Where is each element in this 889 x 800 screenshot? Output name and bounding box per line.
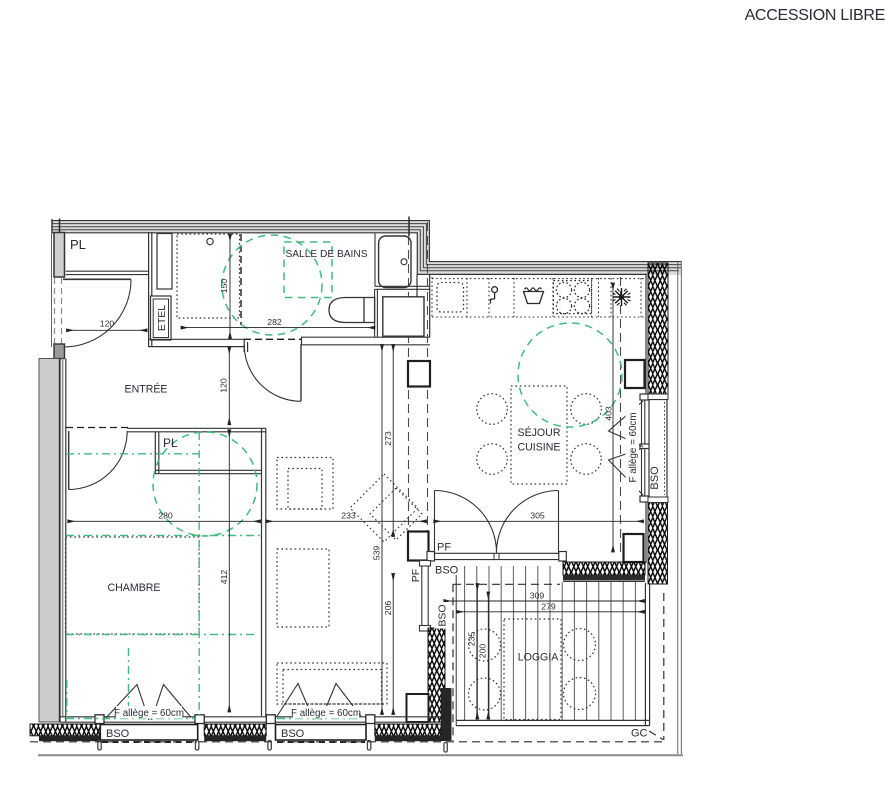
svg-text:PL: PL	[70, 237, 86, 252]
svg-text:235: 235	[467, 632, 477, 647]
svg-text:ACCESSION LIBRE: ACCESSION LIBRE	[745, 7, 885, 24]
svg-text:BSO: BSO	[106, 728, 130, 740]
svg-text:539: 539	[371, 546, 381, 561]
svg-text:GC: GC	[631, 728, 648, 740]
svg-text:CUISINE: CUISINE	[518, 442, 561, 454]
svg-text:PL: PL	[163, 436, 178, 450]
svg-text:PF: PF	[437, 542, 451, 554]
svg-text:120: 120	[219, 378, 229, 393]
svg-text:BSO: BSO	[437, 604, 449, 626]
svg-text:F allège = 60cm: F allège = 60cm	[114, 708, 184, 719]
svg-text:ETEL: ETEL	[156, 305, 168, 331]
svg-text:273: 273	[383, 431, 393, 446]
svg-text:150: 150	[219, 279, 229, 294]
svg-text:BSO: BSO	[649, 466, 661, 490]
svg-text:LOGGIA: LOGGIA	[518, 652, 560, 664]
svg-text:206: 206	[383, 601, 393, 616]
svg-text:412: 412	[219, 570, 229, 585]
svg-text:309: 309	[530, 591, 545, 601]
svg-text:SÉJOUR: SÉJOUR	[518, 426, 561, 439]
svg-text:ENTRÉE: ENTRÉE	[125, 383, 168, 396]
svg-text:CHAMBRE: CHAMBRE	[108, 582, 161, 594]
svg-text:305: 305	[530, 511, 545, 521]
svg-text:BSO: BSO	[435, 565, 459, 577]
svg-text:280: 280	[158, 511, 173, 521]
svg-text:F allège = 60cm: F allège = 60cm	[291, 708, 361, 719]
svg-text:SALLE DE BAINS: SALLE DE BAINS	[285, 249, 367, 260]
svg-text:233: 233	[341, 511, 356, 521]
svg-text:403: 403	[603, 406, 613, 421]
svg-text:PF: PF	[410, 569, 422, 582]
svg-text:120: 120	[100, 319, 115, 329]
svg-text:200: 200	[478, 644, 488, 659]
svg-text:279: 279	[541, 601, 556, 611]
svg-text:BSO: BSO	[281, 728, 305, 740]
svg-text:282: 282	[267, 317, 282, 327]
svg-text:F allège = 60cm: F allège = 60cm	[628, 413, 639, 483]
